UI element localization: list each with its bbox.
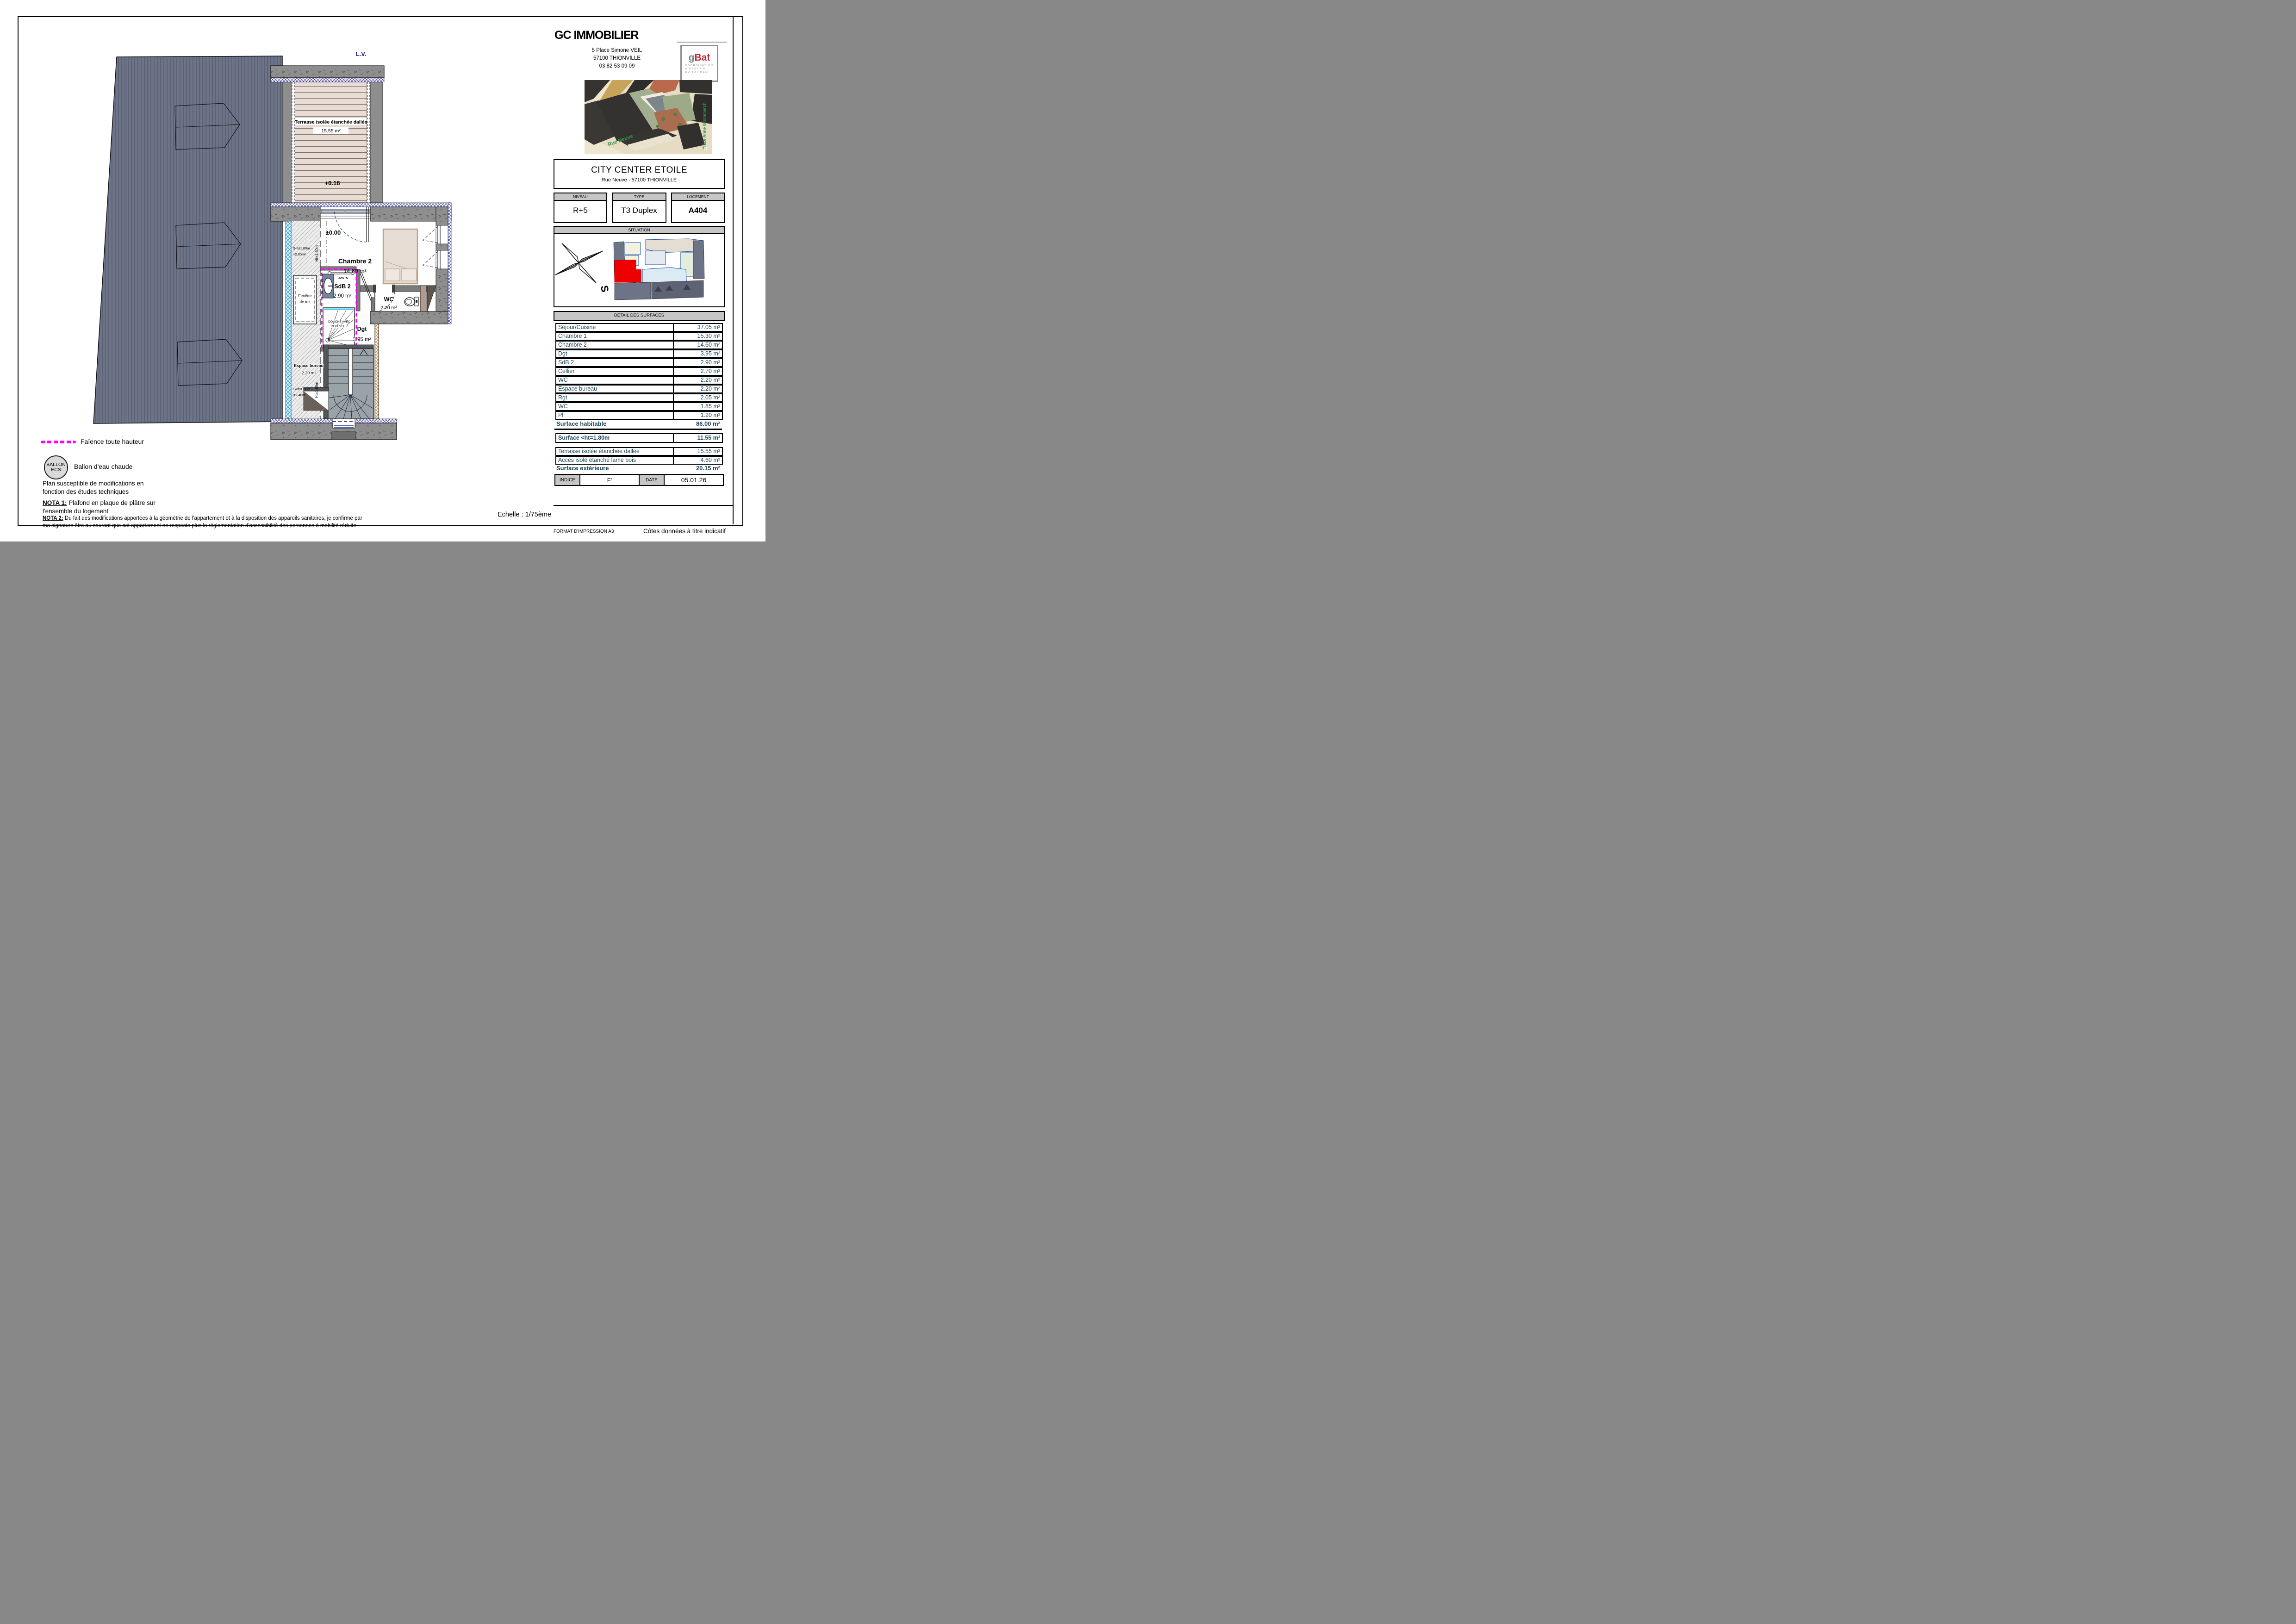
row-value: 15.55 m² [673, 448, 722, 455]
sdb2-area: 2.90 m² [334, 293, 352, 299]
logo-line-3: DU BATIMENT [685, 71, 714, 74]
table-row: WC2.20 m² [555, 376, 723, 385]
mini-site-plan [614, 239, 704, 300]
row-value: 15.30 m² [673, 333, 722, 340]
logo-divider [677, 42, 727, 43]
table-row: Accès isolé étanché lame bois4.60 m² [555, 456, 723, 465]
row-label: SdB 2 [556, 359, 673, 366]
s-ser: S. Ser. [338, 276, 348, 280]
bottom-wall [271, 419, 397, 440]
s-ht-lower-2: =2.40m² [293, 393, 306, 397]
nota1-label: NOTA 1: [43, 499, 67, 506]
project-title-box: CITY CENTER ETOILE Rue Neuve - 57100 THI… [554, 159, 725, 189]
ht-line-upper: Ht=1.80m [315, 245, 319, 261]
dgt-area: 3.95 m² [353, 337, 371, 342]
nota-2: NOTA 2: Du fait des modifications apport… [43, 515, 441, 529]
dgt-name: Dgt [357, 326, 367, 332]
compass-s: S [598, 285, 611, 293]
floor-plan: L.V. Terrasse isolée étanchée dallée 15.… [88, 44, 458, 460]
type-value: T3 Duplex [613, 201, 666, 220]
faience-label: Faïence toute hauteur [81, 438, 144, 445]
nota2-label: NOTA 2: [43, 516, 63, 521]
ext-label: Surface extérieure [555, 465, 672, 472]
indice-label: INDICE [555, 475, 580, 485]
terrace-name: Terrasse isolée étanchée dallée [295, 119, 367, 125]
logo-line-2: & GESTION [685, 68, 714, 71]
sdb2-name: SdB 2 [334, 283, 350, 290]
row-value: 4.60 m² [673, 457, 722, 464]
roof [93, 56, 282, 423]
s-ht-upper-1: S<ht1.80m [293, 246, 310, 250]
row-label: Rgt [556, 394, 673, 401]
row-value: 14.60 m² [673, 342, 722, 348]
date-label: DATE [640, 475, 665, 485]
indice-row: INDICE F' DATE 05.01.26 [554, 474, 724, 486]
photo-north: N [704, 147, 707, 152]
under-label: Surface <ht=1.80m [556, 434, 673, 442]
logo-bat: Bat [694, 52, 710, 63]
plan-sheet: L.V. Terrasse isolée étanchée dallée 15.… [0, 0, 765, 541]
fenetre-toit-1: Fenêtre [298, 293, 312, 298]
row-value: 2.70 m² [673, 368, 722, 375]
stairs [324, 345, 373, 419]
row-label: Terrasse isolée étanchée dallée [556, 448, 673, 455]
ht-line-lower: Ht=1.80m [315, 382, 319, 398]
situation-title: SITUATION [554, 227, 724, 234]
niveau-value: R+5 [554, 201, 606, 220]
row-label: WC [556, 403, 673, 410]
stair-wall-insulation [375, 324, 379, 419]
date-value: 05.01.26 [665, 475, 723, 485]
apartment-top-wall [271, 203, 451, 221]
type-label: TYPE [613, 193, 666, 201]
terrace-level: +0.18 [325, 180, 340, 187]
print-format: FORMAT D'IMPRESSION A3 [554, 529, 614, 534]
row-value: 2.20 m² [673, 386, 722, 392]
row-label: Séjour/Cuisine [556, 324, 673, 331]
sidebar-bottom-line [554, 505, 733, 506]
sidebar-separator [733, 16, 734, 524]
table-row: Espace bureau2.20 m² [555, 385, 723, 393]
disclaimer: Plan susceptible de modifications en fon… [43, 479, 143, 496]
row-value: 2.05 m² [673, 394, 722, 401]
bureau-area: 2.20 m² [302, 371, 316, 375]
type-box: TYPE T3 Duplex [612, 193, 666, 223]
top-wall [271, 66, 384, 82]
table-row: Chambre 214.60 m² [555, 341, 723, 349]
table-row: Chambre 115.30 m² [555, 332, 723, 341]
terrace-area: 15.55 m² [321, 128, 341, 134]
chambre2-area: 14.60 m² [343, 268, 366, 274]
nota2-text: Du fait des modifications apportées à la… [63, 516, 362, 521]
cotes-note: Côtes données à titre indicatif [643, 528, 726, 535]
logo-line-1: COORDINATION [685, 64, 714, 68]
table-row: Dgt3.95 m² [555, 349, 723, 358]
surface-under-row: Surface <ht=1.80m 11.55 m² [555, 433, 723, 443]
row-label: Dgt [556, 350, 673, 357]
label-lv: L.V. [356, 50, 367, 57]
aerial-photo: Rue Neuve Place Anne Grommerch N [585, 80, 712, 154]
row-label: WC [556, 377, 673, 384]
nota2-text-2: ma signature être au courant que cet app… [43, 522, 441, 529]
compass [555, 243, 603, 284]
project-title: CITY CENTER ETOILE [591, 165, 687, 175]
s-ht-lower-1: S<ht1.80m [293, 387, 310, 391]
scale-label: Echelle : 1/75ème [498, 511, 551, 518]
divider [554, 429, 722, 430]
row-value: 2.20 m² [673, 377, 722, 384]
ballon-ecs-icon: BALLON ECS [44, 455, 68, 479]
chambre2-name: Chambre 2 [338, 257, 372, 265]
row-label: Pl [556, 412, 673, 419]
bureau-name: Espace bureau [294, 363, 324, 368]
bed [383, 229, 417, 284]
row-label: Chambre 2 [556, 342, 673, 348]
company-block: GC IMMOBILIER 5 Place Simone VEIL 57100 … [554, 29, 679, 70]
table-row: Pl1.20 m² [555, 411, 723, 420]
table-row: Cellier2.70 m² [555, 367, 723, 376]
logement-value: A404 [672, 201, 724, 220]
row-label: Accès isolé étanché lame bois [556, 457, 673, 464]
disclaimer-line-2: fonction des études techniques [43, 488, 143, 496]
under-value: 11.55 m² [673, 434, 722, 442]
row-label: Chambre 1 [556, 333, 673, 340]
ext-value: 20.15 m² [672, 465, 721, 472]
surface-exterieure-row: Surface extérieure 20.15 m² [555, 465, 721, 472]
nota-1: NOTA 1: Plafond en plaque de plâtre sur … [43, 499, 156, 516]
logement-box: LOGEMENT A404 [671, 193, 725, 223]
ballon-line-2: ECS [51, 467, 61, 473]
surfaces-title: DETAIL DES SURFACES [554, 311, 725, 321]
fenetre-toit-2: de toit [299, 299, 311, 304]
wc-area: 2.20 m² [380, 305, 397, 311]
row-value: 1.20 m² [673, 412, 722, 419]
wc-bottom-wall [370, 311, 448, 324]
wc-name: WC [384, 296, 394, 303]
table-row: WC1.85 m² [555, 402, 723, 411]
row-label: Espace bureau [556, 386, 673, 392]
level-zero: ±0.00 [326, 229, 341, 236]
niveau-label: NIVEAU [554, 193, 606, 201]
indice-value: F' [580, 475, 640, 485]
s-ht-upper-2: =2.00m² [293, 252, 306, 256]
table-row: Séjour/Cuisine37.05 m² [555, 323, 723, 332]
row-value: 37.05 m² [673, 324, 722, 331]
wall-insulation-cyan [286, 221, 292, 419]
company-name: GC IMMOBILIER [554, 29, 679, 42]
douche-1: DOUCHE AVEC [328, 320, 350, 324]
surface-habitable-row: Surface habitable 86.00 m² [555, 420, 721, 427]
gbat-logo: gBat COORDINATION & GESTION DU BATIMENT [680, 45, 718, 82]
company-address-1: 5 Place Simone VEIL [554, 47, 679, 55]
nota1-text: Plafond en plaque de plâtre sur [67, 499, 156, 506]
situation-box: SITUATION S [554, 226, 725, 307]
row-value: 1.85 m² [673, 403, 722, 410]
situation-map: S [554, 234, 722, 303]
ballon-label: Ballon d'eau chaude [74, 463, 132, 470]
disclaimer-line-1: Plan susceptible de modifications en [43, 479, 143, 488]
table-row: Terrasse isolée étanchée dallée15.55 m² [555, 447, 723, 456]
row-value: 2.90 m² [673, 359, 722, 366]
table-row: Rgt2.05 m² [555, 393, 723, 402]
company-address-2: 57100 THIONVILLE [554, 55, 679, 62]
photo-street-place: Place Anne Grommerch [702, 102, 707, 149]
row-value: 3.95 m² [673, 350, 722, 357]
faience-dash-sample [41, 441, 76, 443]
habitable-label: Surface habitable [555, 420, 672, 427]
logement-label: LOGEMENT [672, 193, 724, 201]
douche-2: RECEVEUR [331, 325, 348, 328]
company-phone: 03 82 53 09 09 [554, 62, 679, 70]
row-label: Cellier [556, 368, 673, 375]
habitable-value: 86.00 m² [672, 420, 721, 427]
project-address: Rue Neuve - 57100 THIONVILLE [602, 177, 677, 183]
table-row: SdB 22.90 m² [555, 358, 723, 367]
niveau-box: NIVEAU R+5 [554, 193, 607, 223]
logo-g: g [689, 52, 695, 63]
